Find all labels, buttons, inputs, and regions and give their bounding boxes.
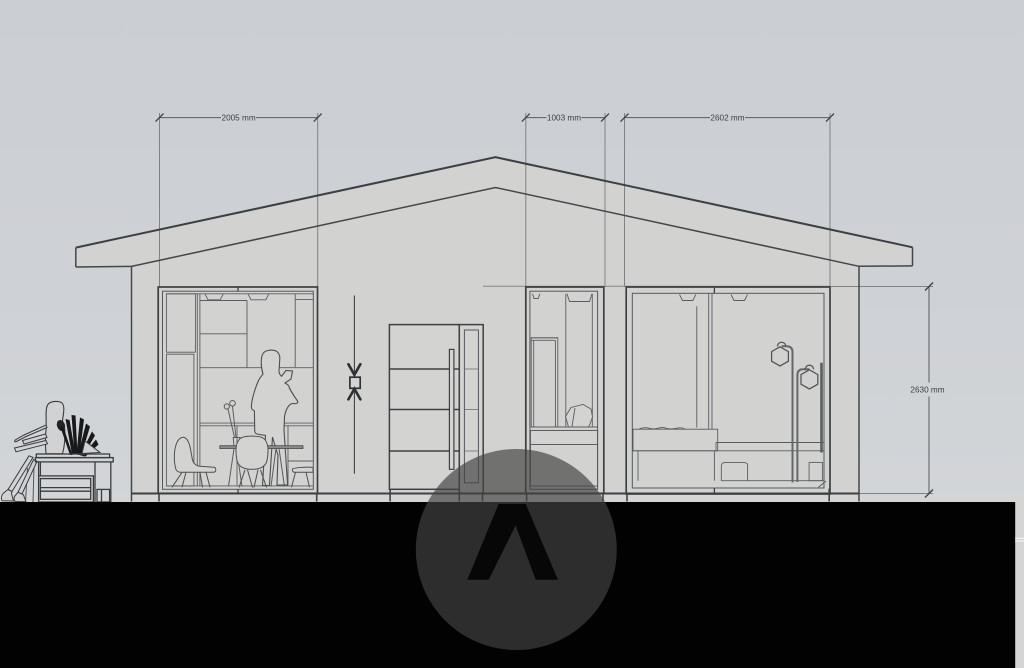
svg-text:2630 mm: 2630 mm: [910, 386, 944, 395]
svg-text:2602 mm: 2602 mm: [710, 113, 744, 122]
svg-text:2005 mm: 2005 mm: [222, 113, 256, 122]
svg-text:1003 mm: 1003 mm: [547, 113, 581, 122]
